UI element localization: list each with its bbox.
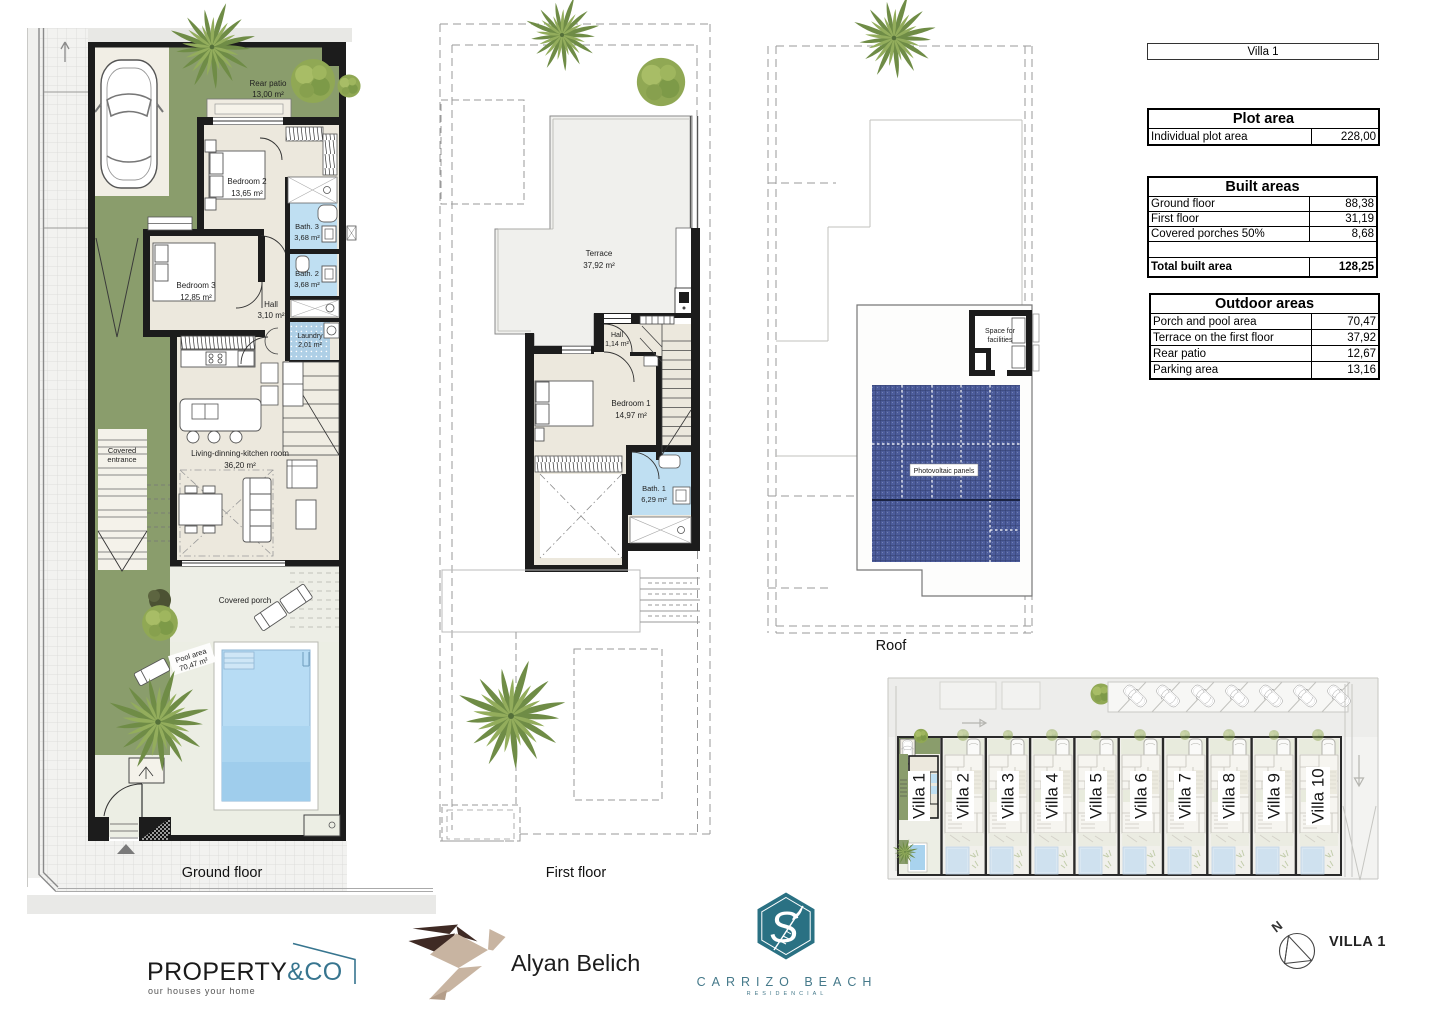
svg-text:12,85 m²: 12,85 m²	[180, 293, 212, 302]
svg-text:Bedroom 2: Bedroom 2	[227, 177, 267, 186]
svg-text:2,01 m²: 2,01 m²	[298, 342, 322, 349]
svg-text:Bedroom 1: Bedroom 1	[611, 399, 651, 408]
svg-text:Villa 6: Villa 6	[1132, 773, 1151, 819]
svg-text:Covered porch: Covered porch	[219, 596, 271, 605]
svg-text:36,20 m²: 36,20 m²	[224, 461, 256, 470]
svg-text:13,65 m²: 13,65 m²	[231, 189, 263, 198]
svg-text:Hall: Hall	[264, 300, 278, 309]
svg-text:Villa 2: Villa 2	[954, 773, 973, 819]
svg-text:Living-dinning-kitchen room: Living-dinning-kitchen room	[191, 449, 289, 458]
svg-text:1,14 m²: 1,14 m²	[605, 341, 629, 348]
svg-text:Terrace: Terrace	[586, 249, 613, 258]
svg-text:3,10 m²: 3,10 m²	[257, 311, 284, 320]
svg-text:Rear patio: Rear patio	[250, 79, 287, 88]
svg-text:3,68 m²: 3,68 m²	[294, 233, 320, 242]
svg-text:Hall: Hall	[611, 332, 624, 339]
svg-text:Villa 1: Villa 1	[910, 773, 929, 819]
svg-text:Bath. 3: Bath. 3	[295, 222, 319, 231]
svg-text:Villa 10: Villa 10	[1309, 768, 1328, 823]
svg-text:Villa 3: Villa 3	[999, 773, 1018, 819]
svg-text:entrance: entrance	[107, 455, 136, 464]
svg-text:13,00 m²: 13,00 m²	[252, 90, 284, 99]
svg-text:Villa 4: Villa 4	[1043, 773, 1062, 819]
svg-text:14,97 m²: 14,97 m²	[615, 411, 647, 420]
svg-text:Covered: Covered	[108, 446, 136, 455]
svg-text:Villa 5: Villa 5	[1087, 773, 1106, 819]
svg-text:6,29 m²: 6,29 m²	[641, 495, 667, 504]
svg-text:Roof: Roof	[876, 638, 908, 654]
svg-text:Villa 7: Villa 7	[1176, 773, 1195, 819]
svg-text:Space for: Space for	[985, 328, 1016, 335]
svg-text:Photovoltaic panels: Photovoltaic panels	[914, 468, 975, 475]
svg-text:facilities: facilities	[988, 337, 1013, 344]
svg-text:Bath. 1: Bath. 1	[642, 484, 666, 493]
svg-text:Bath. 2: Bath. 2	[295, 269, 319, 278]
svg-text:Villa 8: Villa 8	[1220, 773, 1239, 819]
svg-text:37,92 m²: 37,92 m²	[583, 261, 615, 270]
svg-text:Villa 9: Villa 9	[1265, 773, 1284, 819]
svg-text:Laundry: Laundry	[297, 333, 323, 340]
svg-text:Bedroom 3: Bedroom 3	[176, 281, 216, 290]
svg-text:S: S	[769, 903, 798, 952]
svg-text:Ground floor: Ground floor	[182, 865, 263, 881]
svg-text:First floor: First floor	[546, 865, 607, 881]
svg-text:3,68 m²: 3,68 m²	[294, 280, 320, 289]
